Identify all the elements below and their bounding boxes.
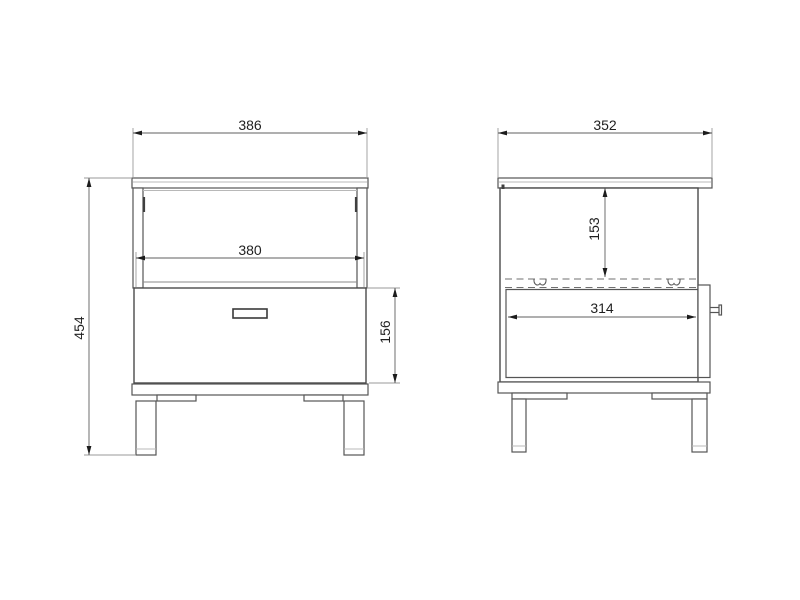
drawing-canvas: 386 380 454 156 bbox=[0, 0, 800, 600]
side-panel bbox=[500, 188, 698, 382]
apron-front bbox=[512, 393, 567, 399]
drawer-handle bbox=[233, 309, 267, 318]
side-panel-left bbox=[133, 188, 143, 288]
apron-back bbox=[652, 393, 707, 399]
apron-left bbox=[157, 395, 196, 401]
top-panel bbox=[132, 178, 368, 188]
dimension-label: 454 bbox=[71, 316, 87, 340]
technical-drawing: 386 380 454 156 bbox=[0, 0, 800, 600]
top-panel bbox=[498, 178, 712, 188]
leg-left bbox=[136, 401, 156, 455]
dimension-label: 380 bbox=[238, 242, 262, 258]
drawer-front-edge bbox=[698, 285, 710, 378]
leg-front bbox=[512, 399, 526, 452]
side-panel-right bbox=[357, 188, 367, 288]
drawer-front bbox=[134, 288, 366, 383]
dimension-label: 153 bbox=[586, 217, 602, 241]
handle-end-cap bbox=[719, 305, 722, 315]
dimension-label: 156 bbox=[377, 320, 393, 344]
dimension-label: 386 bbox=[238, 117, 262, 133]
dimension-label: 352 bbox=[593, 117, 617, 133]
leg-back bbox=[692, 399, 707, 452]
joint-mark-top bbox=[502, 185, 505, 190]
leg-right bbox=[344, 401, 364, 455]
base-rail bbox=[132, 384, 368, 395]
dimension-label: 314 bbox=[590, 300, 614, 316]
base-rail bbox=[498, 382, 710, 393]
apron-right bbox=[304, 395, 343, 401]
